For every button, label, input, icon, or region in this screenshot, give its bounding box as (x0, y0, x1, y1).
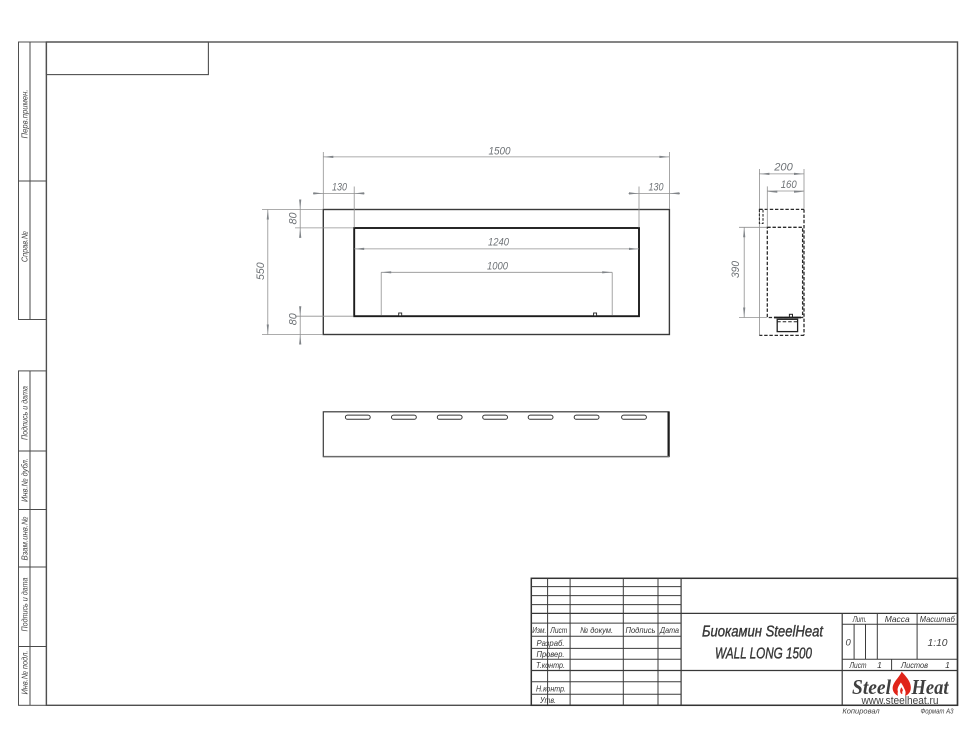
svg-text:Перв.примен.: Перв.примен. (20, 90, 30, 139)
svg-text:390: 390 (730, 260, 742, 278)
svg-text:Дата: Дата (659, 625, 679, 635)
svg-text:Инв.№ дубл.: Инв.№ дубл. (20, 458, 30, 502)
svg-text:130: 130 (649, 182, 665, 194)
svg-text:Биокамин SteelHeat: Биокамин SteelHeat (702, 623, 823, 640)
svg-text:Т.контр.: Т.контр. (536, 660, 565, 670)
svg-text:1000: 1000 (487, 261, 509, 273)
svg-text:1: 1 (877, 660, 882, 670)
svg-text:Лист: Лист (550, 625, 568, 635)
svg-text:1: 1 (945, 660, 950, 670)
svg-text:Провер.: Провер. (537, 649, 565, 659)
svg-text:Инв.№ подл.: Инв.№ подл. (20, 651, 30, 695)
svg-text:WALL LONG 1500: WALL LONG 1500 (715, 646, 812, 663)
svg-text:200: 200 (773, 162, 793, 174)
svg-text:№ докум.: № докум. (580, 625, 613, 635)
svg-text:Разраб.: Разраб. (537, 638, 565, 648)
svg-text:Подпись и дата: Подпись и дата (20, 577, 30, 631)
svg-text:1500: 1500 (489, 146, 512, 158)
svg-text:Масштаб: Масштаб (920, 614, 956, 624)
svg-text:Утв.: Утв. (539, 695, 556, 705)
svg-text:Подпись: Подпись (626, 625, 656, 635)
svg-text:Листов: Листов (900, 660, 928, 670)
svg-text:Изм.: Изм. (532, 625, 546, 635)
svg-text:1240: 1240 (488, 237, 510, 249)
svg-text:160: 160 (781, 179, 798, 191)
svg-text:www.steelheat.ru: www.steelheat.ru (861, 695, 939, 707)
svg-text:Формат А3: Формат А3 (921, 707, 955, 716)
svg-text:Лист: Лист (849, 660, 867, 670)
svg-text:Н.контр.: Н.контр. (536, 684, 566, 694)
svg-text:Подпись и дата: Подпись и дата (20, 386, 30, 440)
svg-text:Масса: Масса (885, 614, 910, 624)
svg-text:Лит.: Лит. (852, 614, 867, 624)
svg-text:0: 0 (845, 638, 851, 649)
svg-text:80: 80 (287, 212, 299, 225)
svg-text:130: 130 (332, 182, 348, 194)
svg-text:Взам.инв.№: Взам.инв.№ (20, 517, 30, 561)
svg-text:80: 80 (287, 312, 299, 325)
svg-text:Справ.№: Справ.№ (20, 231, 30, 262)
svg-text:Копировал: Копировал (842, 707, 880, 716)
svg-text:550: 550 (255, 262, 267, 280)
svg-text:1:10: 1:10 (928, 637, 948, 649)
